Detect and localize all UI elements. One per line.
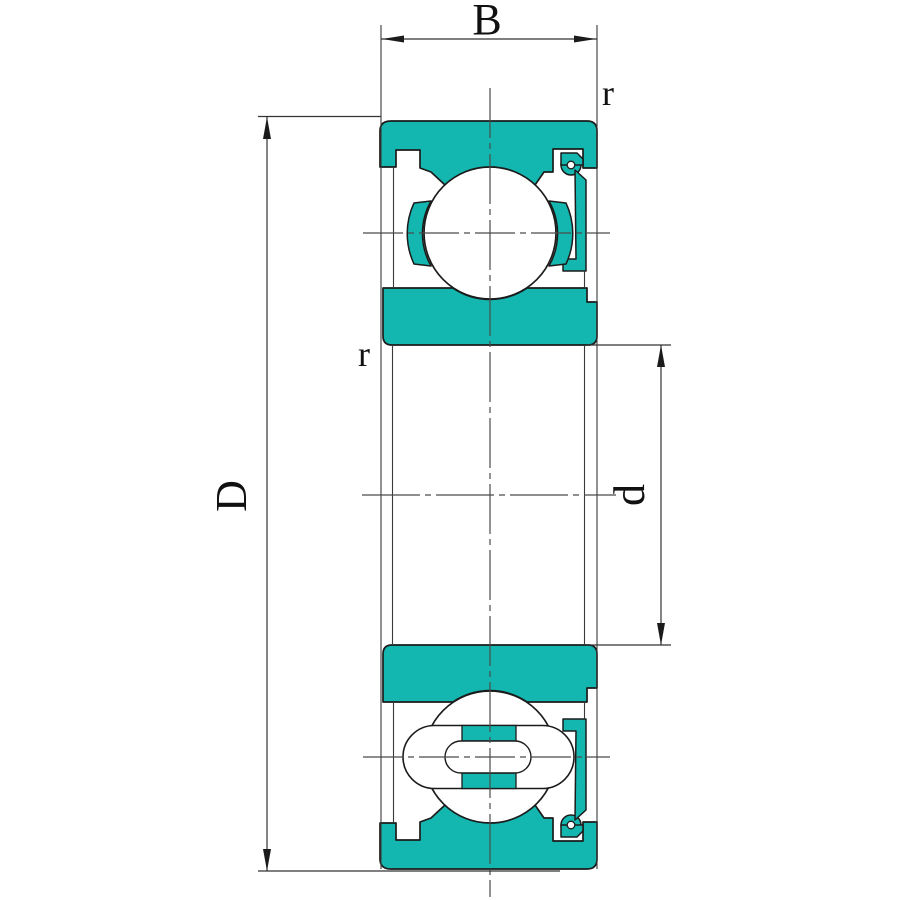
cage-rivet-top [462,726,516,742]
dim-B-arrow-left [382,36,404,43]
label-bore-diameter-d: d [605,484,654,506]
cage-rivet-bottom [462,773,516,789]
label-chamfer-outer-r: r [602,73,614,113]
dim-D-arrow-top [263,117,271,139]
dim-d-arrow-top [657,345,665,367]
dim-B-arrow-right [574,36,596,43]
dim-d-arrow-bottom [657,623,665,645]
dim-D-arrow-bottom [263,849,271,871]
label-width-B: B [472,0,501,44]
label-outer-diameter-D: D [207,480,256,512]
technical-drawing: B D d r r [0,0,900,900]
bearing-section-diagram: B D d r r [0,0,900,900]
label-chamfer-inner-r: r [358,334,370,374]
